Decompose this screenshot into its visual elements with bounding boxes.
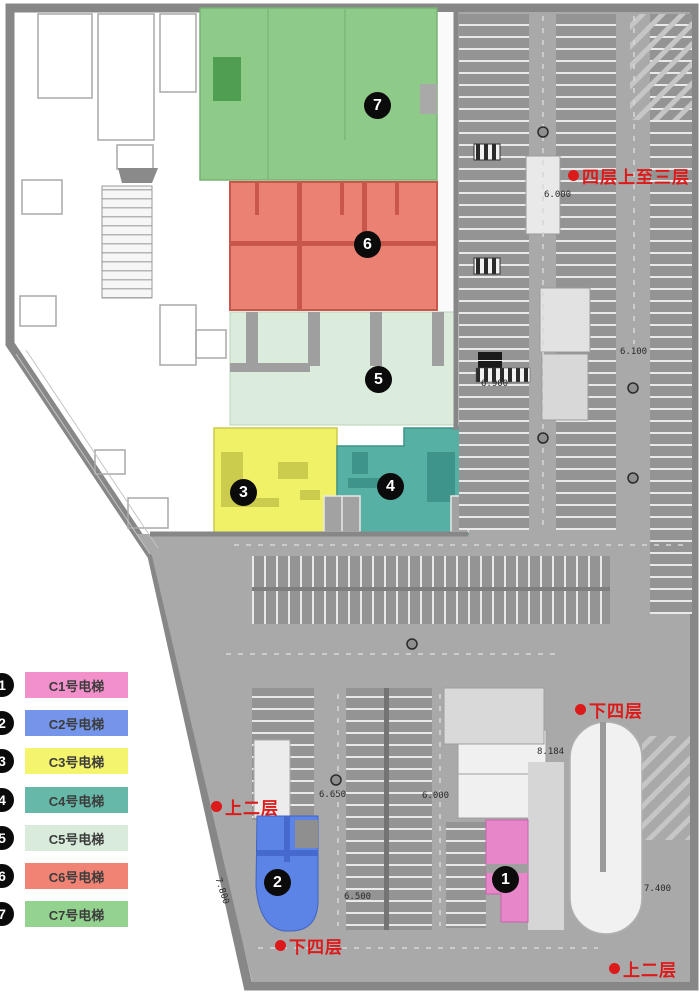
marker-elevator-6: 6 [354,231,381,258]
marker-elevator-5: 5 [365,366,392,393]
marker-elevator-1: 1 [492,866,519,893]
red-dot-icon [568,170,579,181]
legend-label: C1号电梯 [25,672,128,698]
legend-label: C3号电梯 [25,748,128,774]
legend-label: C7号电梯 [25,901,128,927]
red-dot-icon [609,963,620,974]
dimension-label: 6.500 [344,892,371,902]
marker-elevator-7: 7 [364,92,391,119]
dimension-label: 6.100 [620,347,647,357]
red-dot-icon [275,940,286,951]
marker-elevator-4: 4 [377,473,404,500]
red-dot-icon [575,704,586,715]
region-c3-elevator [214,428,337,534]
legend-label: C6号电梯 [25,863,128,889]
region-c7-elevator [200,8,437,180]
legend-label: C4号电梯 [25,787,128,813]
ramp-note-text: 上二层 [225,794,279,819]
stair-icon [474,258,500,274]
ramp-note-up-2f-bottom-right: 上二层 [609,956,677,981]
ramp-note-text: 上二层 [623,956,677,981]
marker-elevator-2: 2 [264,869,291,896]
ramp-note-down-4f-bottom: 下四层 [275,933,343,958]
region-c6-elevator [230,182,437,310]
ramp-note-down-4f-right: 下四层 [575,697,643,722]
dimension-label: 6.650 [319,790,346,800]
ramp-note-4f-to-3f: 四层上至三层 [568,163,690,188]
marker-elevator-3: 3 [230,479,257,506]
ramp-note-text: 四层上至三层 [582,163,690,188]
dimension-label: 8.184 [537,747,564,757]
parking-floor-plan: 1 2 3 4 5 6 7 四层上至三层 下四层 上二层 下四层 上二层 6.0… [0,0,700,997]
dimension-label: 6.900 [481,379,508,389]
red-dot-icon [211,801,222,812]
stair-ramp [102,186,152,298]
dimension-label: 6.000 [544,190,571,200]
dimension-label: 6.000 [422,791,449,801]
region-c5-elevator [230,312,468,425]
dimension-label: 7.400 [644,884,671,894]
stair-icon [474,144,500,160]
ramp-note-text: 下四层 [289,933,343,958]
ramp-note-text: 下四层 [589,697,643,722]
legend-label: C2号电梯 [25,710,128,736]
ramp-note-up-2f-left: 上二层 [211,794,279,819]
legend-label: C5号电梯 [25,825,128,851]
